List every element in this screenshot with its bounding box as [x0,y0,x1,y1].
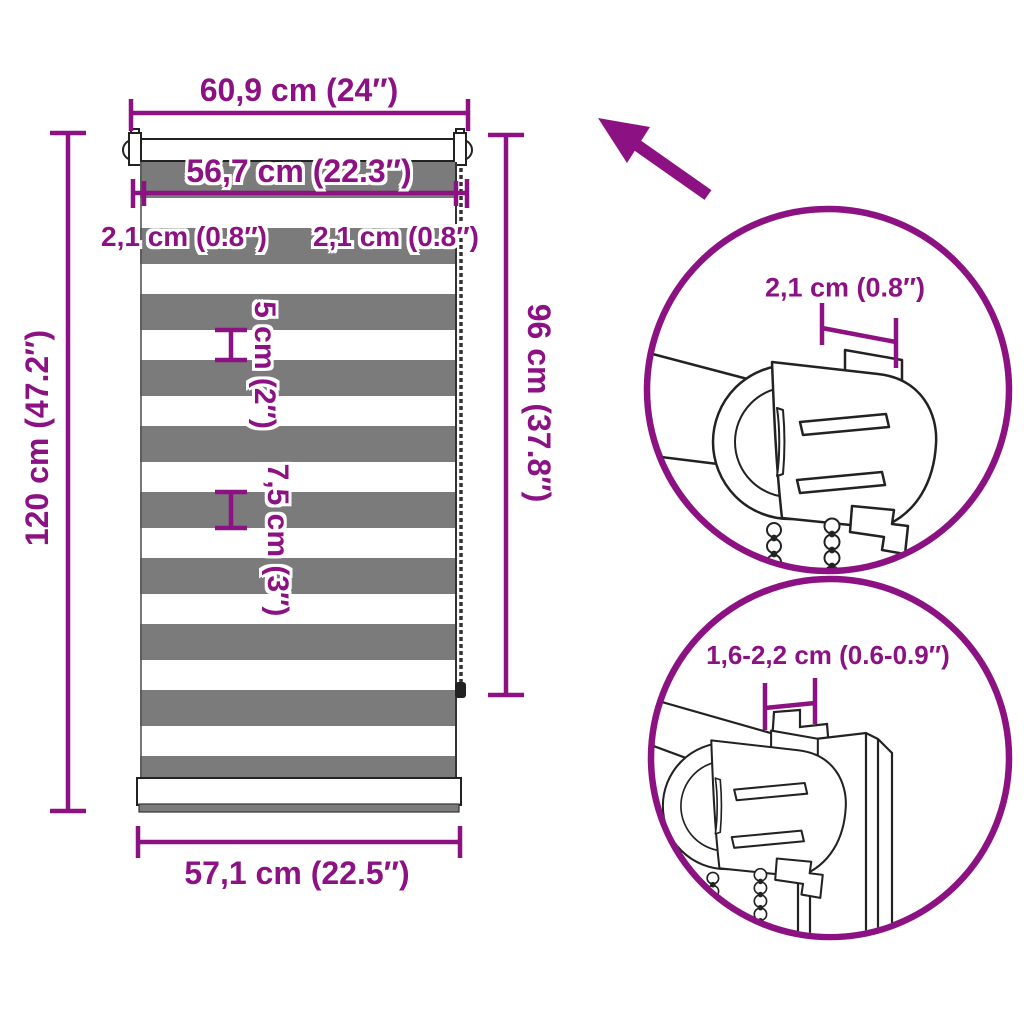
left-offset-label: 2,1 cm (0.8″) [101,223,267,251]
blind-fabric [140,162,457,778]
fabric-height-label: 96 cm (37.8″) [523,304,555,503]
bottom-width-label: 57,1 cm (22.5″) [184,857,409,889]
roller-bracket-left [123,129,141,165]
right-offset-label: 2,1 cm (0.8″) [313,223,479,251]
fabric-width-label: 56,7 cm (22.3″) [186,155,411,187]
product-dimension-diagram: 60,9 cm (24″) 56,7 cm (22.3″) 2,1 cm (0.… [0,0,1024,1024]
roller-bracket-right [454,129,472,165]
frame-thickness-label: 1,6-2,2 cm (0.6-0.9″) [706,642,950,668]
total-height-label: 120 cm (47.2″) [21,330,53,546]
up-left-arrow-icon [598,118,708,195]
diagram-artwork [0,0,1024,1024]
dim-total-height [50,131,86,813]
bracket-depth-label: 2,1 cm (0.8″) [765,275,925,302]
dark-stripe-label: 7,5 cm (3″) [262,464,292,617]
chain-connector [455,682,466,698]
light-stripe-label: 5 cm (2″) [249,301,279,429]
dim-fabric-height [488,133,524,697]
detail-circle-bottom [648,579,1009,945]
top-width-label: 60,9 cm (24″) [200,74,399,106]
bottom-rail [137,778,461,812]
dim-bottom-width [136,826,462,858]
detail-circle-top [645,209,1009,598]
